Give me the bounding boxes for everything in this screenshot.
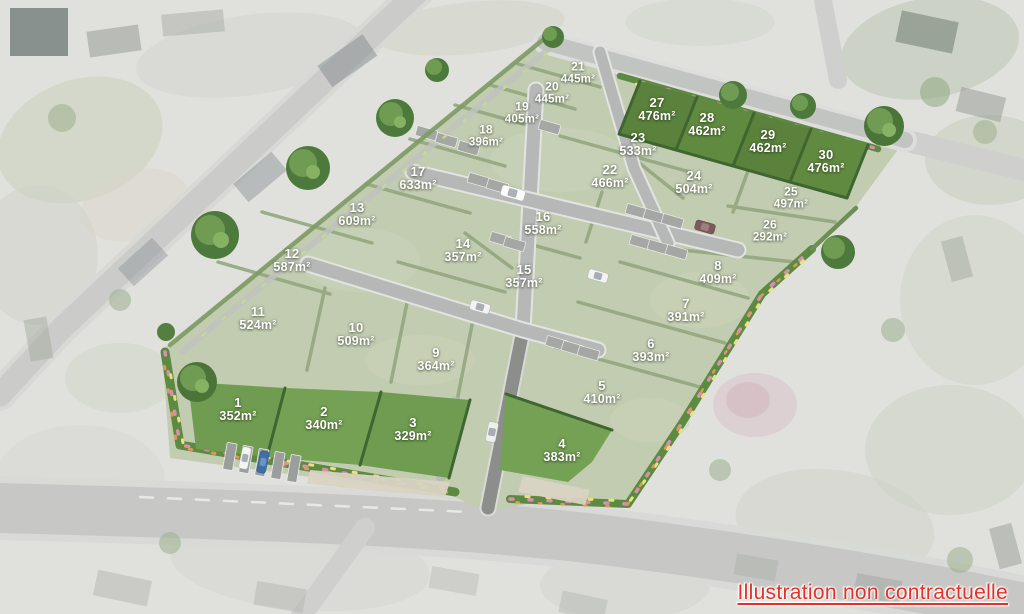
lot-number: 29	[749, 128, 786, 142]
lot-label-4[interactable]: 4383m²	[543, 437, 580, 465]
lot-label-2[interactable]: 2340m²	[305, 405, 342, 433]
lot-label-17: 17633m²	[399, 165, 436, 193]
lot-label-30[interactable]: 30476m²	[807, 148, 844, 176]
lot-area-value: 364m²	[417, 360, 454, 374]
lot-label-1[interactable]: 1352m²	[219, 396, 256, 424]
lot-number: 25	[774, 185, 808, 198]
disclaimer-text: Illustration non contractuelle	[738, 581, 1009, 605]
lot-label-3[interactable]: 3329m²	[394, 416, 431, 444]
lot-number: 17	[399, 165, 436, 179]
lot-area-value: 383m²	[543, 451, 580, 465]
lot-number: 28	[688, 111, 725, 125]
lot-area-value: 609m²	[338, 215, 375, 229]
lot-number: 8	[699, 259, 736, 273]
lot-label-24: 24504m²	[675, 169, 712, 197]
lot-area-value: 533m²	[619, 145, 656, 159]
lot-area-value: 329m²	[394, 430, 431, 444]
lot-area-value: 352m²	[219, 410, 256, 424]
lot-label-12: 12587m²	[273, 247, 310, 275]
lot-label-27[interactable]: 27476m²	[638, 96, 675, 124]
lot-area-value: 445m²	[561, 73, 595, 85]
lot-label-10: 10509m²	[337, 321, 374, 349]
lot-area-value: 405m²	[505, 113, 539, 125]
lot-label-23: 23533m²	[619, 131, 656, 159]
lot-label-18: 18396m²	[469, 123, 503, 148]
lot-area-value: 391m²	[667, 311, 704, 325]
lot-number: 14	[444, 237, 481, 251]
lot-number: 1	[219, 396, 256, 410]
lot-area-value: 357m²	[444, 251, 481, 265]
lot-area-value: 396m²	[469, 136, 503, 148]
lot-number: 16	[524, 210, 561, 224]
lot-label-14: 14357m²	[444, 237, 481, 265]
lot-number: 12	[273, 247, 310, 261]
lot-area-value: 462m²	[688, 125, 725, 139]
lot-label-7: 7391m²	[667, 297, 704, 325]
lot-area-value: 504m²	[675, 183, 712, 197]
lot-number: 2	[305, 405, 342, 419]
lot-label-15: 15357m²	[505, 263, 542, 291]
lot-number: 10	[337, 321, 374, 335]
lot-area-value: 393m²	[632, 351, 669, 365]
lot-number: 22	[591, 163, 628, 177]
lot-label-11: 11524m²	[239, 305, 276, 333]
lot-number: 6	[632, 337, 669, 351]
lot-label-8: 8409m²	[699, 259, 736, 287]
lot-label-21: 21445m²	[561, 60, 595, 85]
lot-number: 30	[807, 148, 844, 162]
site-plan-canvas: 1352m² 2340m² 3329m² 4383m² 5410m² 6393m…	[0, 0, 1024, 614]
lot-label-22: 22466m²	[591, 163, 628, 191]
lot-number: 7	[667, 297, 704, 311]
lot-area-value: 497m²	[774, 198, 808, 210]
lot-area-value: 409m²	[699, 273, 736, 287]
lot-area-value: 587m²	[273, 261, 310, 275]
lot-number: 23	[619, 131, 656, 145]
lot-area-value: 476m²	[638, 110, 675, 124]
lot-area-value: 445m²	[535, 93, 569, 105]
lot-number: 11	[239, 305, 276, 319]
lot-area-value: 509m²	[337, 335, 374, 349]
lot-area-value: 524m²	[239, 319, 276, 333]
lot-area-value: 476m²	[807, 162, 844, 176]
lot-number: 4	[543, 437, 580, 451]
lot-number: 15	[505, 263, 542, 277]
lot-number: 27	[638, 96, 675, 110]
lot-area-value: 292m²	[753, 231, 787, 243]
lot-label-5: 5410m²	[583, 379, 620, 407]
lot-number: 26	[753, 218, 787, 231]
lot-number: 24	[675, 169, 712, 183]
lot-number: 13	[338, 201, 375, 215]
lot-number: 3	[394, 416, 431, 430]
lot-label-6: 6393m²	[632, 337, 669, 365]
lot-area-value: 410m²	[583, 393, 620, 407]
lot-area-value: 340m²	[305, 419, 342, 433]
lot-area-value: 466m²	[591, 177, 628, 191]
lot-label-9: 9364m²	[417, 346, 454, 374]
lot-label-25: 25497m²	[774, 185, 808, 210]
lot-number: 9	[417, 346, 454, 360]
lot-area-value: 633m²	[399, 179, 436, 193]
lot-label-28[interactable]: 28462m²	[688, 111, 725, 139]
lot-number: 21	[561, 60, 595, 73]
site-plan-illustration	[0, 0, 1024, 614]
lot-number: 18	[469, 123, 503, 136]
lot-label-13: 13609m²	[338, 201, 375, 229]
lot-number: 5	[583, 379, 620, 393]
lot-label-26: 26292m²	[753, 218, 787, 243]
lot-label-16: 16558m²	[524, 210, 561, 238]
lot-area-value: 462m²	[749, 142, 786, 156]
lot-area-value: 558m²	[524, 224, 561, 238]
lot-area-value: 357m²	[505, 277, 542, 291]
lot-label-29[interactable]: 29462m²	[749, 128, 786, 156]
